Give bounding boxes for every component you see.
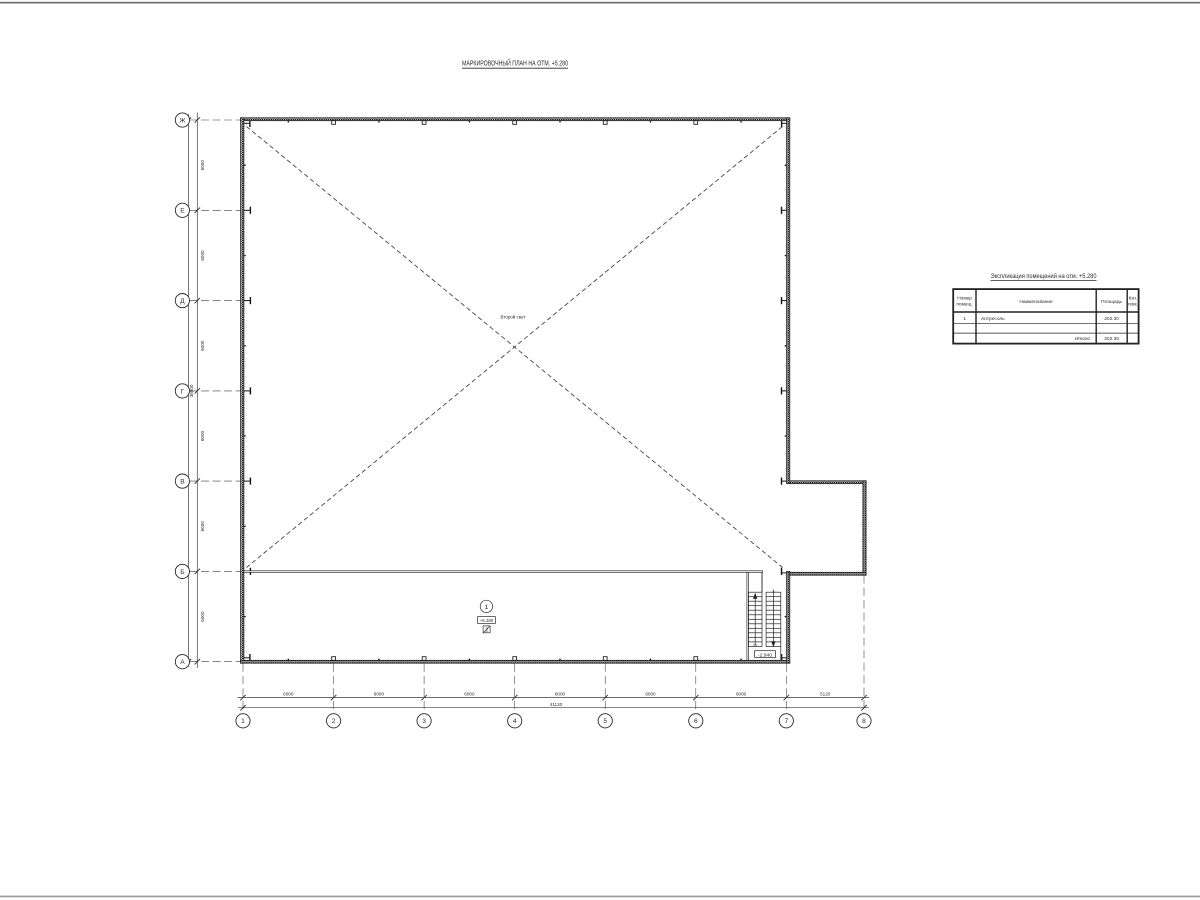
svg-text:помещ.: помещ. — [956, 303, 973, 308]
svg-text:Б: Б — [180, 569, 184, 576]
svg-text:Г: Г — [181, 388, 185, 395]
svg-text:6000: 6000 — [736, 692, 747, 697]
svg-text:-2.940: -2.940 — [758, 652, 772, 657]
svg-text:202.30: 202.30 — [1104, 336, 1119, 342]
svg-text:8: 8 — [862, 718, 866, 725]
svg-text:1: 1 — [963, 316, 966, 322]
svg-text:6000: 6000 — [200, 340, 205, 351]
svg-text:5: 5 — [603, 718, 607, 725]
svg-text:6000: 6000 — [464, 692, 475, 697]
svg-text:пом.: пом. — [1128, 303, 1138, 308]
svg-text:2: 2 — [485, 627, 488, 633]
svg-text:6000: 6000 — [200, 250, 205, 261]
svg-text:Кат.: Кат. — [1129, 296, 1137, 302]
svg-text:41120: 41120 — [550, 702, 563, 707]
svg-text:4: 4 — [513, 718, 517, 725]
svg-text:1: 1 — [241, 718, 245, 725]
svg-text:Площадь: Площадь — [1101, 299, 1122, 305]
svg-text:МАРКИРОВОЧНЫЙ ПЛАН НА ОТМ. +5.: МАРКИРОВОЧНЫЙ ПЛАН НА ОТМ. +5.280 — [462, 59, 568, 68]
svg-text:Экспликация помещений на отм.: Экспликация помещений на отм. +5.280 — [991, 272, 1097, 280]
svg-text:6000: 6000 — [555, 692, 566, 697]
svg-text:Номер: Номер — [957, 296, 972, 302]
svg-text:+5.280: +5.280 — [480, 618, 494, 624]
svg-text:5120: 5120 — [820, 692, 831, 697]
svg-text:6000: 6000 — [645, 692, 656, 697]
svg-text:Ж: Ж — [179, 117, 185, 124]
svg-text:Итого: Итого — [1075, 336, 1090, 342]
svg-text:6000: 6000 — [283, 692, 294, 697]
svg-text:Е: Е — [180, 208, 185, 215]
svg-text:2: 2 — [332, 718, 336, 725]
svg-text:Наименование: Наименование — [1019, 299, 1053, 305]
svg-text:3: 3 — [422, 718, 426, 725]
svg-text:6000: 6000 — [200, 611, 205, 622]
svg-text:6000: 6000 — [200, 521, 205, 532]
svg-text:7: 7 — [784, 718, 788, 725]
svg-text:Д: Д — [180, 298, 185, 305]
svg-text:202.30: 202.30 — [1104, 316, 1119, 322]
svg-text:6000: 6000 — [374, 692, 385, 697]
svg-text:1: 1 — [485, 604, 489, 611]
svg-text:Антресоль: Антресоль — [981, 316, 1005, 322]
svg-text:В: В — [180, 479, 185, 486]
svg-text:6000: 6000 — [200, 430, 205, 441]
svg-text:6000: 6000 — [200, 160, 205, 171]
svg-text:6: 6 — [694, 718, 698, 725]
svg-text:Второй свет: Второй свет — [501, 314, 527, 321]
svg-text:А: А — [180, 659, 185, 666]
